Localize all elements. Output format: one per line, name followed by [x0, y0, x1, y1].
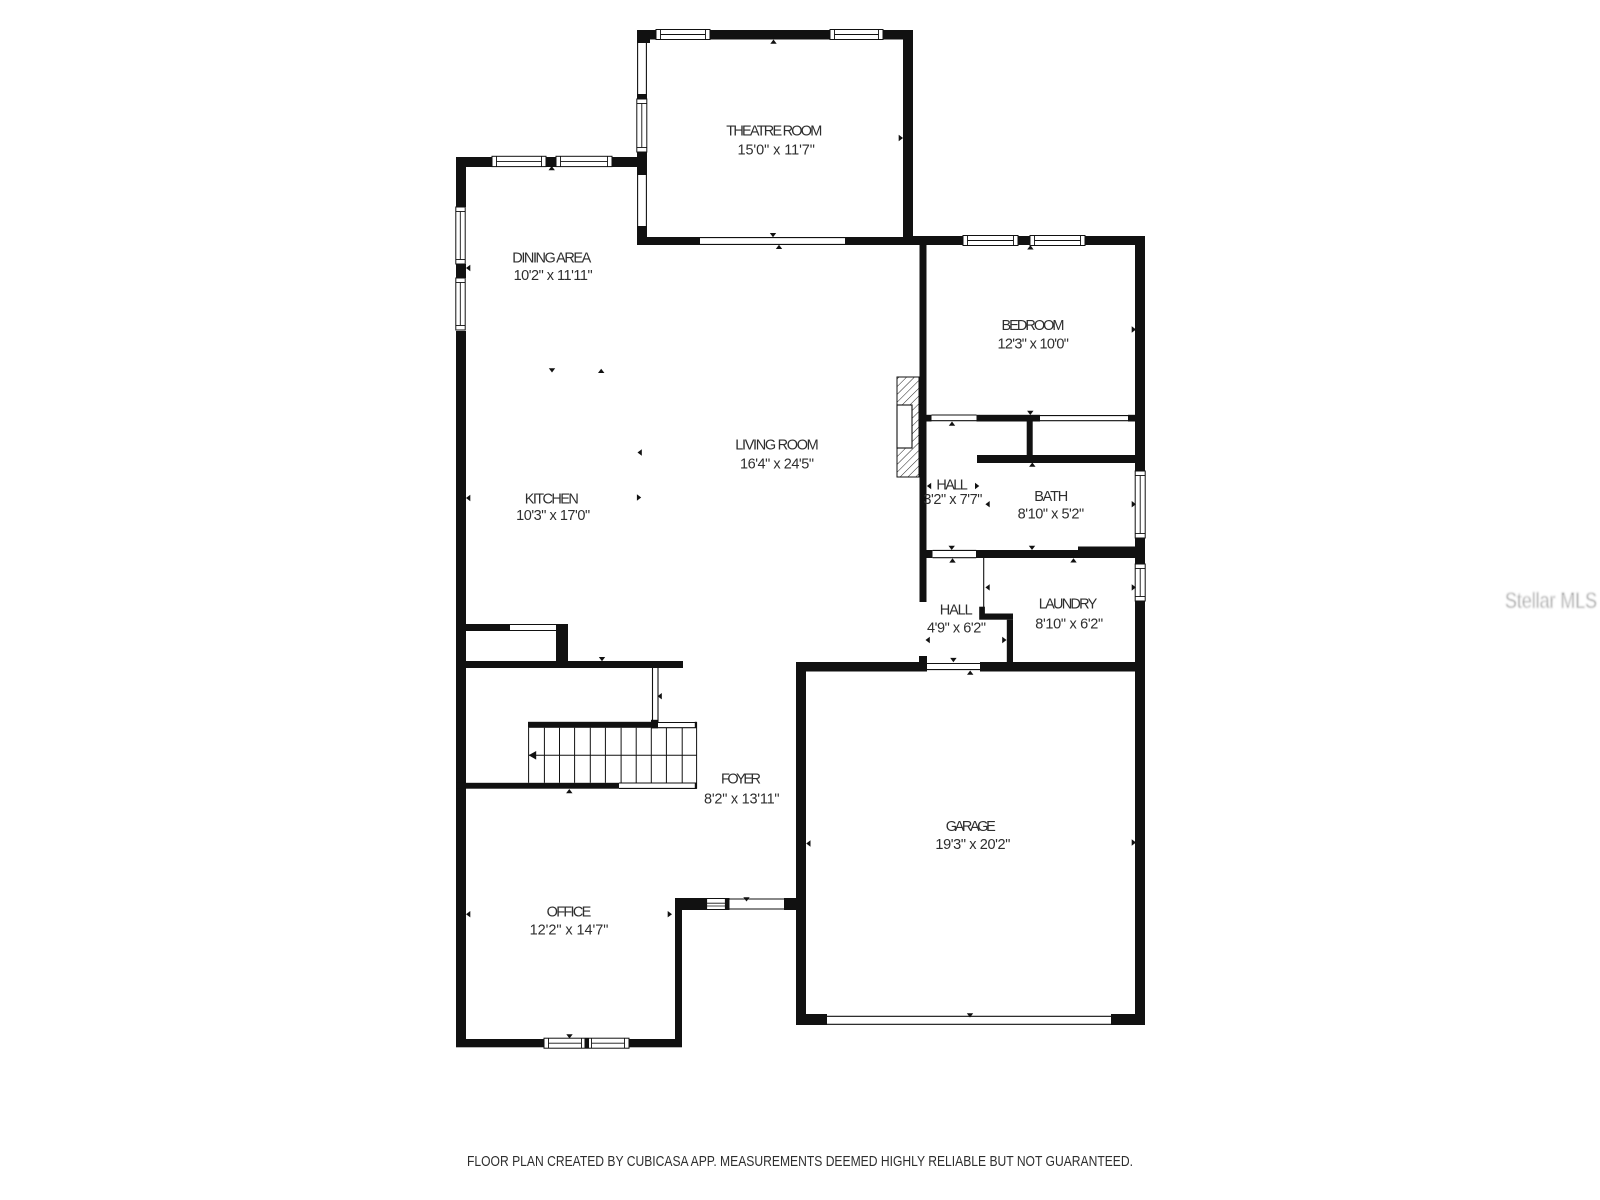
svg-text:LIVING ROOM: LIVING ROOM: [735, 438, 819, 454]
svg-text:Stellar MLS: Stellar MLS: [1505, 588, 1597, 613]
svg-text:4'9" x 6'2": 4'9" x 6'2": [927, 621, 986, 637]
svg-text:HALL: HALL: [940, 603, 973, 619]
svg-text:10'2" x 11'11": 10'2" x 11'11": [514, 268, 593, 284]
svg-text:12'2" x 14'7": 12'2" x 14'7": [530, 923, 609, 939]
svg-text:3'2" x 7'7": 3'2" x 7'7": [923, 492, 982, 508]
svg-text:LAUNDRY: LAUNDRY: [1039, 597, 1098, 613]
svg-text:FOYER: FOYER: [721, 772, 761, 788]
svg-text:16'4" x 24'5": 16'4" x 24'5": [740, 457, 814, 473]
svg-text:KITCHEN: KITCHEN: [525, 492, 579, 508]
svg-text:19'3" x 20'2": 19'3" x 20'2": [935, 837, 1010, 853]
svg-text:8'2" x 13'11": 8'2" x 13'11": [704, 792, 780, 808]
svg-text:8'10" x 5'2": 8'10" x 5'2": [1018, 507, 1085, 523]
svg-text:THEATRE ROOM: THEATRE ROOM: [726, 124, 822, 140]
svg-text:GARAGE: GARAGE: [946, 819, 996, 835]
svg-text:10'3" x 17'0": 10'3" x 17'0": [516, 508, 590, 524]
svg-text:DINING AREA: DINING AREA: [512, 251, 591, 267]
svg-text:15'0" x 11'7": 15'0" x 11'7": [737, 143, 815, 159]
svg-text:8'10" x 6'2": 8'10" x 6'2": [1035, 617, 1103, 633]
svg-text:FLOOR PLAN CREATED BY CUBICASA: FLOOR PLAN CREATED BY CUBICASA APP. MEAS…: [467, 1153, 1133, 1170]
svg-text:12'3" x 10'0": 12'3" x 10'0": [997, 337, 1069, 353]
svg-text:OFFICE: OFFICE: [547, 905, 592, 921]
svg-text:BEDROOM: BEDROOM: [1002, 318, 1065, 334]
svg-text:BATH: BATH: [1034, 489, 1068, 505]
